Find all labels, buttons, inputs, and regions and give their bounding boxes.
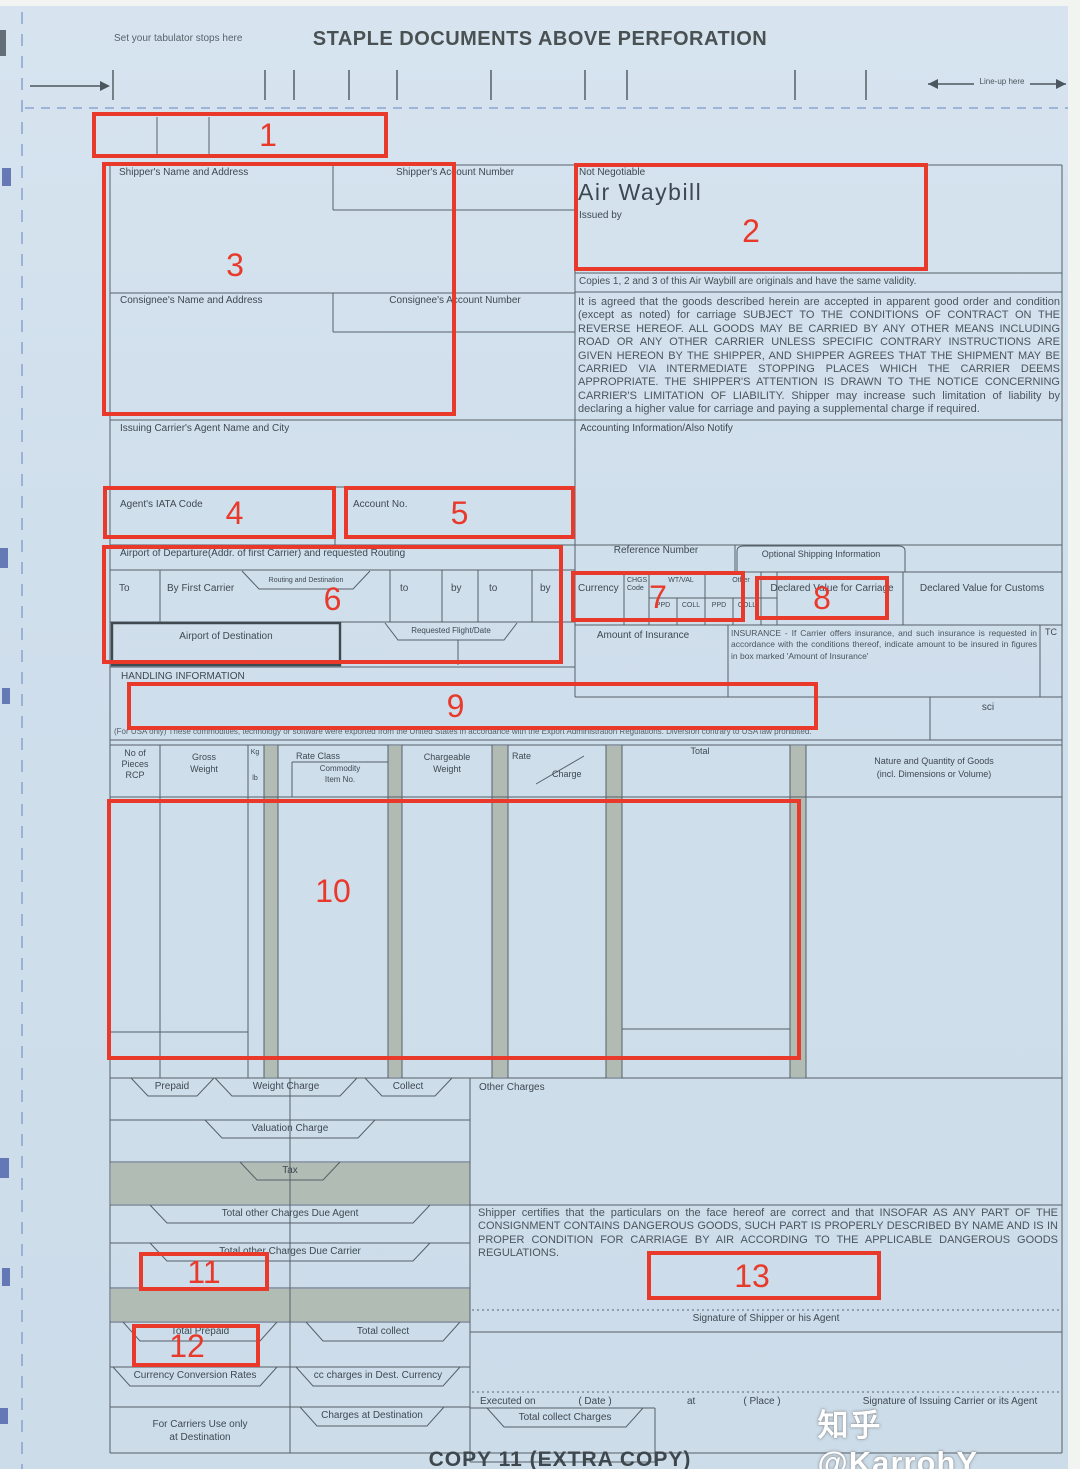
cc-charges-label: cc charges in Dest. Currency <box>314 1370 442 1381</box>
col-pieces-label: No of <box>124 749 146 759</box>
air-waybill-scan: Set your tabulator stops here STAPLE DOC… <box>0 0 1080 1469</box>
annotation-box-9: 9 <box>127 682 818 730</box>
annotation-box-3: 3 <box>102 162 456 416</box>
watermark: 知乎 @KarrohY <box>818 1400 993 1469</box>
rate-class-label: Rate Class <box>296 752 340 762</box>
edge-mark <box>0 1158 9 1178</box>
collect-label: Collect <box>393 1081 424 1092</box>
annotation-box-2: 2 <box>574 163 928 271</box>
annotation-box-11: 11 <box>139 1252 269 1291</box>
rate-label: Rate <box>512 752 531 762</box>
col-chargeable-label: Chargeable <box>424 753 471 763</box>
edge-mark <box>0 1408 8 1424</box>
total-collect-label: Total collect <box>357 1326 409 1337</box>
col-pieces-label: RCP <box>125 771 144 781</box>
valuation-charge-label: Valuation Charge <box>252 1123 329 1134</box>
col-gross-label: Weight <box>190 765 218 775</box>
tax-label: Tax <box>282 1165 298 1176</box>
edge-mark <box>0 30 6 56</box>
annotation-box-10: 10 <box>107 799 801 1060</box>
conditions-text: It is agreed that the goods described he… <box>578 296 1060 417</box>
copy-footer: COPY 11 (EXTRA COPY) <box>429 1448 692 1469</box>
copies-note: Copies 1, 2 and 3 of this Air Waybill ar… <box>579 276 916 287</box>
weight-charge-label: Weight Charge <box>253 1081 320 1092</box>
tc-label: TC <box>1045 628 1057 638</box>
nature-label: (incl. Dimensions or Volume) <box>877 770 992 780</box>
lb-label: lb <box>252 775 257 783</box>
annotation-box-6: 6 <box>102 545 563 664</box>
handling-label: HANDLING INFORMATION <box>121 671 245 682</box>
edge-mark <box>2 688 10 704</box>
total-label: Total <box>690 747 709 757</box>
annotation-box-13: 13 <box>647 1251 881 1300</box>
lineup-note: Line-up here <box>980 78 1025 87</box>
col-chargeable-label: Weight <box>433 765 461 775</box>
at-label: at <box>687 1396 695 1407</box>
charges-destination-label: Charges at Destination <box>321 1410 423 1421</box>
currency-conversion-label: Currency Conversion Rates <box>134 1370 257 1381</box>
signature-shipper-label: Signature of Shipper or his Agent <box>693 1313 840 1324</box>
accounting-label: Accounting Information/Also Notify <box>580 423 733 434</box>
kg-label: Kg <box>251 749 260 757</box>
annotation-box-4: 4 <box>103 486 336 539</box>
col-gross-label: Gross <box>192 753 216 763</box>
date-label: ( Date ) <box>578 1396 611 1407</box>
annotation-box-8: 8 <box>755 576 889 620</box>
annotation-box-12: 12 <box>132 1324 260 1367</box>
nature-label: Nature and Quantity of Goods <box>874 757 994 767</box>
commodity-label: Commodity <box>320 765 360 774</box>
place-label: ( Place ) <box>743 1396 780 1407</box>
issuing-agent-label: Issuing Carrier's Agent Name and City <box>120 423 289 434</box>
due-agent-label: Total other Charges Due Agent <box>222 1208 359 1219</box>
edge-mark <box>2 1268 10 1286</box>
sci-label: sci <box>982 702 994 713</box>
edge-mark <box>2 168 11 186</box>
tabulator-note: Set your tabulator stops here <box>114 33 242 44</box>
carriers-use-label: at Destination <box>169 1432 230 1443</box>
declared-customs-label: Declared Value for Customs <box>920 583 1044 594</box>
total-collect-charges-label: Total collect Charges <box>519 1412 612 1423</box>
other-charges-label: Other Charges <box>479 1082 545 1093</box>
edge-mark <box>0 548 8 568</box>
col-pieces-label: Pieces <box>121 760 148 770</box>
commodity-label: Item No. <box>325 776 355 785</box>
carriers-use-label: For Carriers Use only <box>152 1419 247 1430</box>
annotation-box-5: 5 <box>344 486 575 539</box>
prepaid-label: Prepaid <box>155 1081 189 1092</box>
annotation-box-7: 7 <box>571 571 745 622</box>
executed-on-label: Executed on <box>480 1396 536 1407</box>
optional-shipping-label: Optional Shipping Information <box>762 550 881 560</box>
insurance-note: INSURANCE - If Carrier offers insurance,… <box>731 628 1037 662</box>
charge-label: Charge <box>552 770 582 780</box>
amount-insurance-label: Amount of Insurance <box>597 630 689 641</box>
staple-title: STAPLE DOCUMENTS ABOVE PERFORATION <box>313 28 767 50</box>
annotation-box-1: 1 <box>92 112 388 158</box>
reference-number-label: Reference Number <box>614 545 698 556</box>
